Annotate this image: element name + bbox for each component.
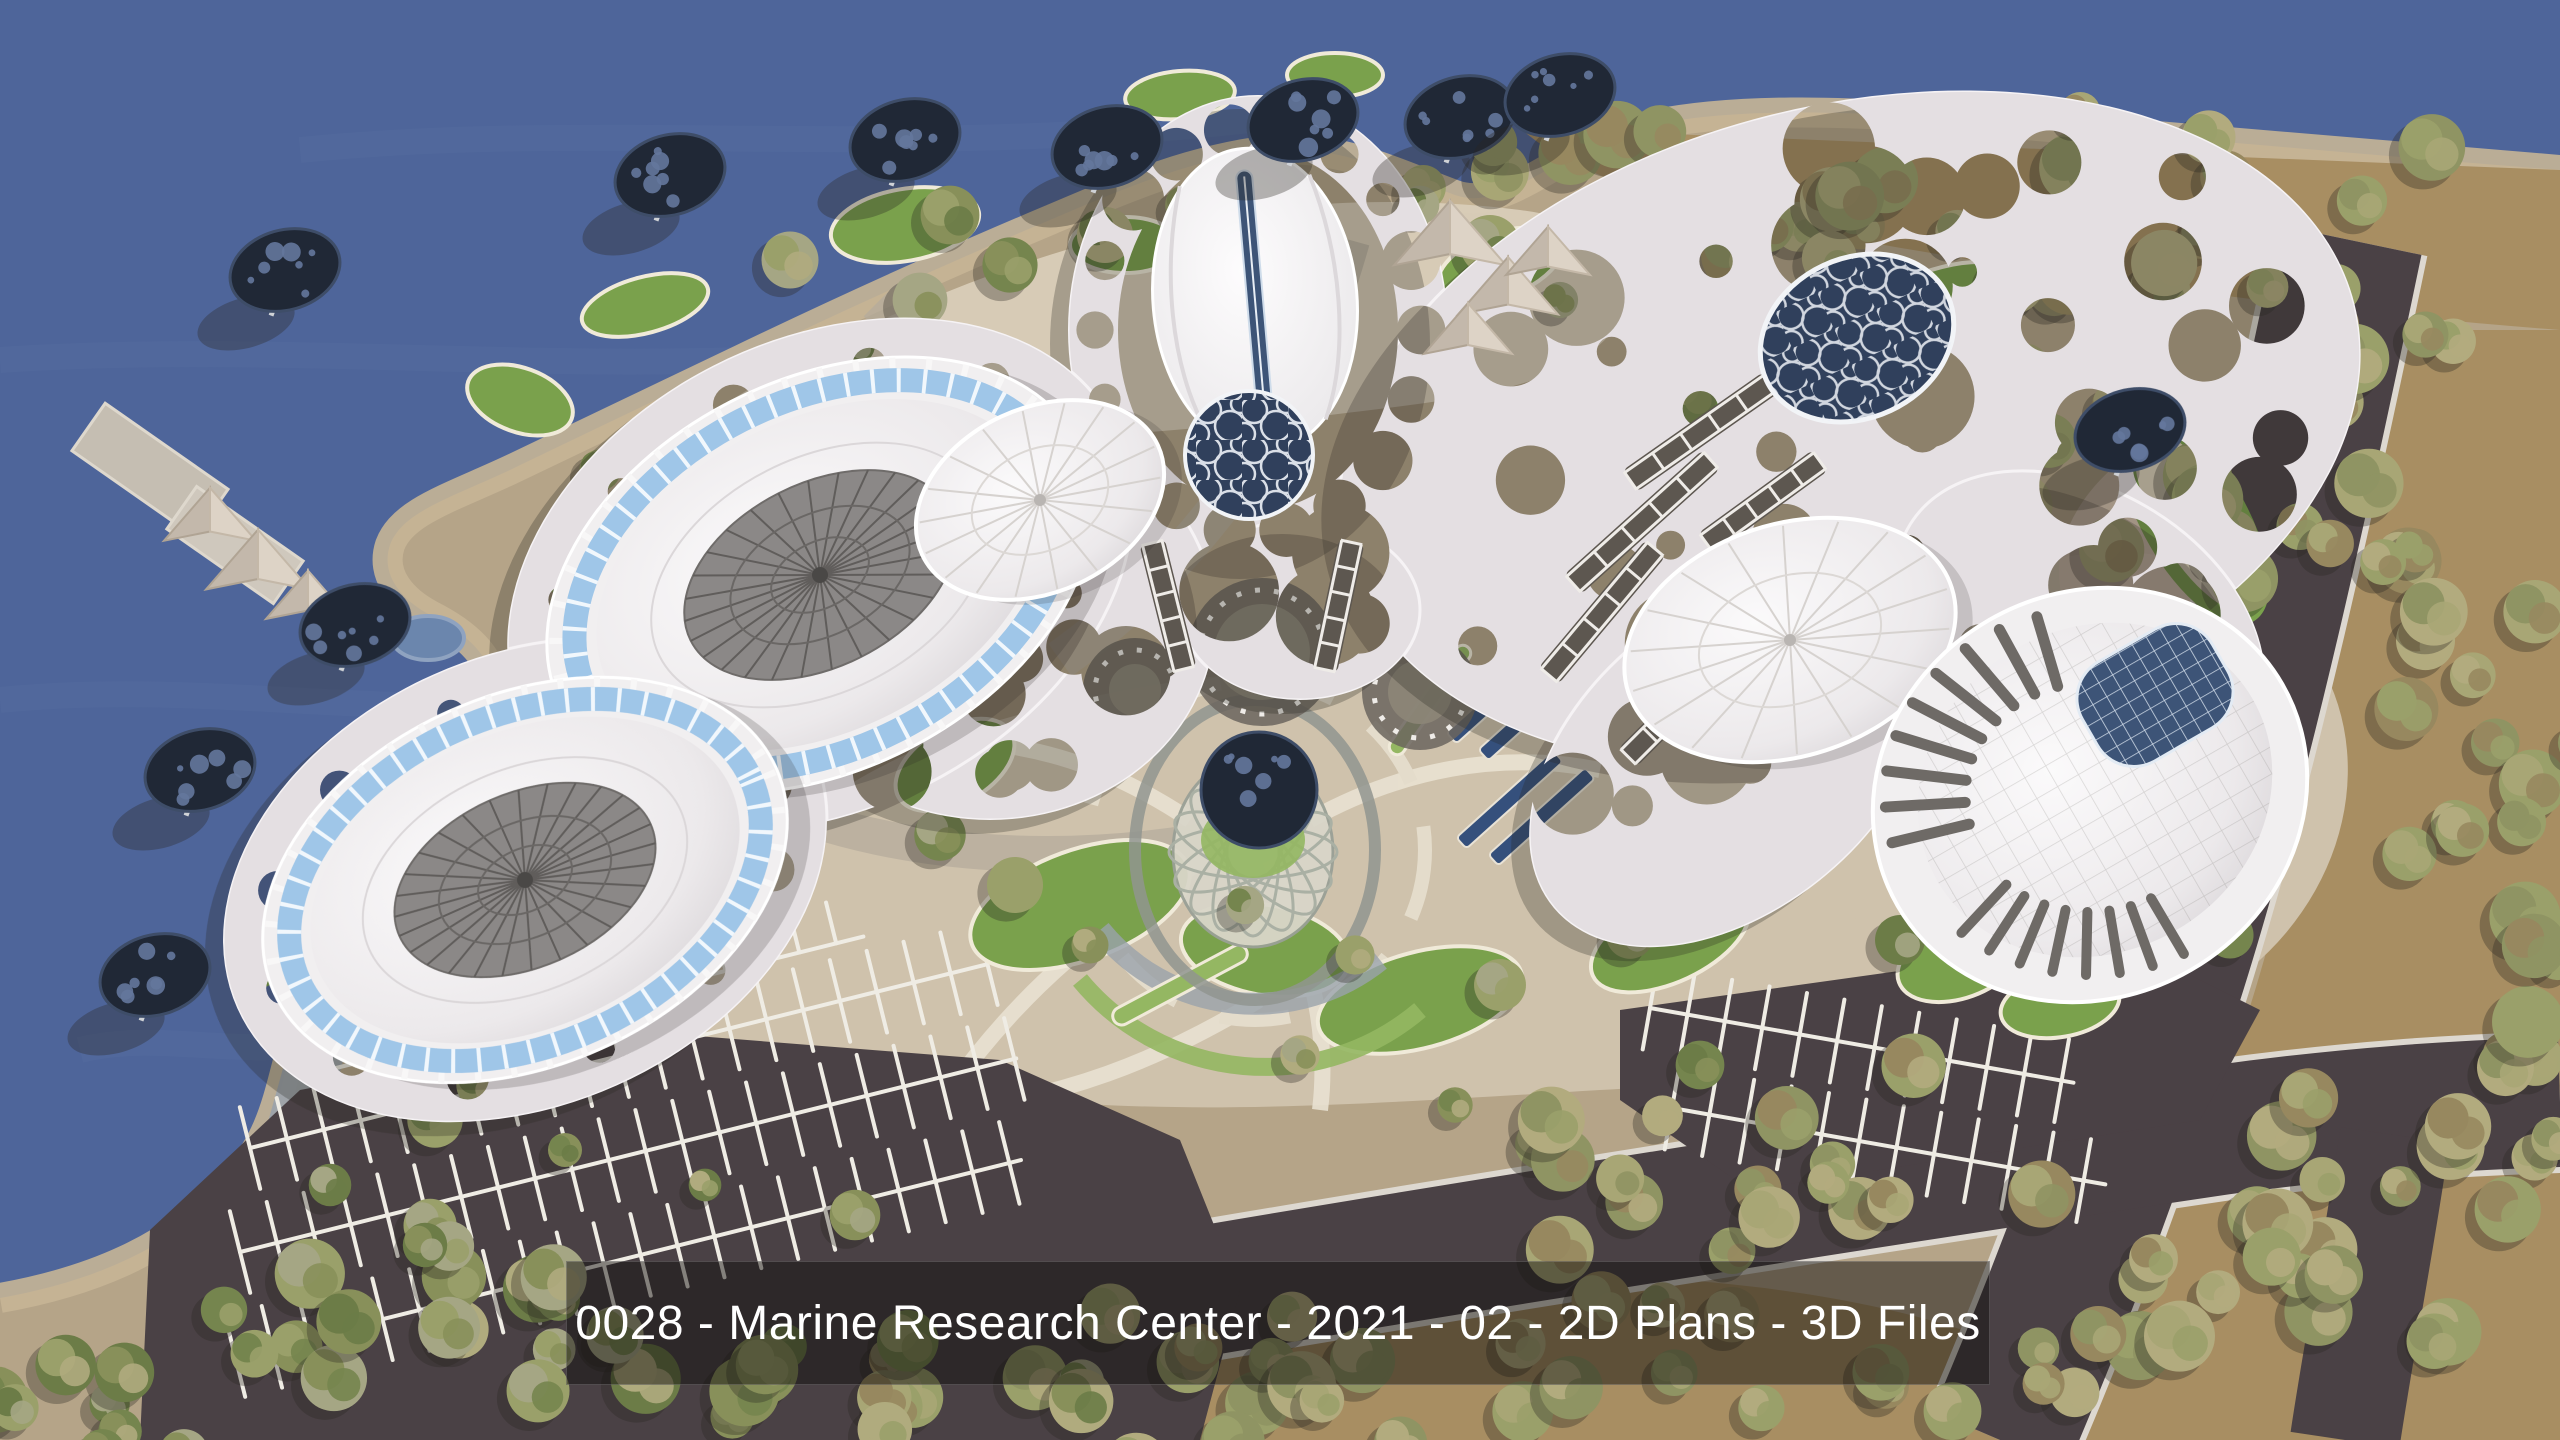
solar-canopy-dot <box>1235 757 1252 774</box>
solar-canopy-dot <box>1271 756 1278 763</box>
tree-canopy <box>2039 1377 2060 1398</box>
tree-canopy <box>2521 1011 2557 1047</box>
tree-canopy <box>2357 193 2382 218</box>
tree-canopy <box>2303 1089 2333 1119</box>
tree-canopy <box>2400 699 2432 731</box>
caption-bar: 0028 - Marine Research Center - 2021 - 0… <box>566 1261 1990 1385</box>
tree-canopy <box>1886 1193 1909 1216</box>
tree-canopy <box>326 1179 347 1200</box>
tree-canopy <box>1317 1394 1339 1416</box>
tree-canopy <box>2034 1342 2055 1363</box>
tree-canopy <box>1824 1176 1845 1197</box>
tree-canopy <box>784 251 812 279</box>
tree-canopy <box>1780 1108 1812 1140</box>
tree-canopy <box>2429 1333 2457 1361</box>
tree-canopy <box>1241 899 1260 918</box>
tree-canopy <box>421 1238 443 1260</box>
tree-canopy <box>10 1401 33 1424</box>
tree-canopy <box>1947 1402 1976 1431</box>
tree-canopy <box>303 1263 338 1298</box>
tree-canopy <box>1763 1208 1794 1239</box>
tree-canopy <box>2172 1326 2207 1361</box>
tree-canopy <box>2449 334 2472 357</box>
tree-canopy <box>219 1303 242 1326</box>
tree-canopy <box>2404 846 2431 873</box>
tree-canopy <box>342 1312 374 1344</box>
tree-canopy <box>2451 1116 2484 1149</box>
tree-canopy <box>250 1347 274 1371</box>
tree-canopy <box>1757 1401 1780 1424</box>
tree-canopy <box>2318 1173 2341 1196</box>
tree-canopy <box>1907 1056 1939 1088</box>
tree-canopy <box>2421 328 2444 351</box>
tree-canopy <box>2425 137 2458 170</box>
tree-canopy <box>1495 977 1521 1003</box>
tree-canopy <box>2517 815 2541 839</box>
tree-canopy <box>1004 257 1032 285</box>
tree-canopy <box>60 1356 90 1386</box>
tree-canopy <box>1075 1391 1107 1423</box>
solar-canopy-dot <box>1240 790 1257 807</box>
circle-shape <box>1185 391 1313 519</box>
tree-canopy <box>1086 939 1105 958</box>
tree-canopy <box>944 206 973 235</box>
tree-canopy <box>2035 1184 2069 1218</box>
tree-canopy <box>444 1239 469 1264</box>
tree-canopy <box>1296 1049 1316 1069</box>
tree-canopy <box>915 292 942 319</box>
central-solar-canopy <box>1201 732 1317 848</box>
leaf-louver-bar <box>1885 802 1965 807</box>
geodesic-sphere-small <box>1185 391 1313 519</box>
aerial-site-render <box>0 0 2560 1440</box>
tree-canopy <box>562 1145 579 1162</box>
tree-canopy <box>1658 1110 1678 1130</box>
tree-canopy <box>2490 735 2514 759</box>
tree-canopy <box>2093 1326 2121 1354</box>
tree-canopy <box>2501 1199 2534 1232</box>
tree-canopy <box>1615 1171 1639 1195</box>
tree-canopy <box>1895 933 1920 958</box>
tree-canopy <box>532 1381 563 1412</box>
tree-canopy <box>2362 473 2397 508</box>
tree-canopy <box>2427 602 2461 636</box>
tree-canopy <box>2396 1180 2416 1200</box>
tree-canopy <box>2266 1248 2295 1277</box>
solar-canopy-dot <box>1255 773 1271 789</box>
tree-canopy <box>443 1318 474 1349</box>
caption-text: 0028 - Marine Research Center - 2021 - 0… <box>575 1296 1980 1351</box>
tree-canopy <box>2149 1251 2173 1275</box>
tree-canopy <box>1545 1110 1579 1144</box>
tree-canopy <box>2214 1286 2236 1308</box>
tree-canopy <box>327 1368 360 1401</box>
tree-canopy <box>2529 602 2560 634</box>
solar-canopy-dot <box>1228 753 1234 759</box>
tree-canopy <box>2468 668 2491 691</box>
tree-canopy <box>2328 1266 2357 1295</box>
solar-canopy-dot <box>1277 755 1291 769</box>
tree-canopy <box>2457 822 2484 849</box>
leaf-louver-bar <box>2086 912 2087 975</box>
tree-canopy <box>1351 949 1371 969</box>
tree-canopy <box>2325 536 2349 560</box>
tree-canopy <box>2379 555 2402 578</box>
tree-canopy <box>1695 1058 1719 1082</box>
tree-canopy <box>2070 1385 2095 1410</box>
tree-canopy <box>702 1180 718 1196</box>
tree-canopy <box>1009 877 1037 905</box>
tree-canopy <box>2528 936 2560 968</box>
tree-canopy <box>850 1207 875 1232</box>
tree-canopy <box>1451 1100 1469 1118</box>
tree-canopy <box>119 1363 149 1393</box>
tree-canopy <box>2411 544 2433 566</box>
